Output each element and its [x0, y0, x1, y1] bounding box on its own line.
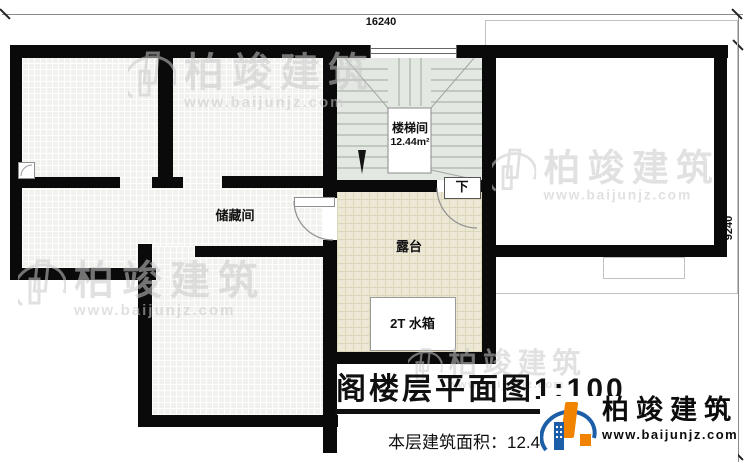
wall: [714, 45, 727, 257]
dim-label-top: 16240: [341, 16, 421, 28]
wall: [195, 246, 337, 257]
door-leaf: [294, 197, 335, 207]
wall: [337, 180, 437, 192]
wall: [323, 352, 496, 364]
eave-detail-box: [603, 257, 685, 279]
wall: [10, 45, 728, 58]
wall: [222, 176, 323, 188]
brand-name: 柏竣建筑: [602, 396, 738, 426]
wall: [10, 268, 156, 280]
window-symbol: [370, 45, 457, 58]
top-dimension-line: [2, 14, 743, 15]
wall: [482, 45, 496, 364]
brand-url: www.baijunjz.com: [602, 427, 738, 442]
right-dimension-line: [738, 14, 739, 462]
water-tank-label: 2T 水箱: [370, 317, 455, 332]
storage-floor-lower: [152, 246, 323, 415]
wall: [492, 245, 727, 257]
brand-logo-icon: [540, 396, 598, 460]
wall: [138, 415, 338, 427]
flue-arc-icon: [19, 163, 34, 178]
stair-down-label: 下: [444, 180, 480, 195]
wall: [138, 244, 152, 427]
wall: [158, 58, 173, 177]
room-label-terrace: 露台: [379, 240, 439, 255]
wall: [323, 240, 337, 453]
flue-box: [18, 162, 35, 179]
floor-plan-canvas: 16240 9240: [0, 0, 750, 468]
room-label-storage: 储藏间: [195, 209, 275, 224]
wall: [152, 177, 183, 188]
room-label-stairwell: 楼梯间 12.44m²: [380, 119, 440, 148]
brand-logo: 柏竣建筑 www.baijunjz.com: [540, 396, 738, 460]
wall: [323, 45, 337, 198]
